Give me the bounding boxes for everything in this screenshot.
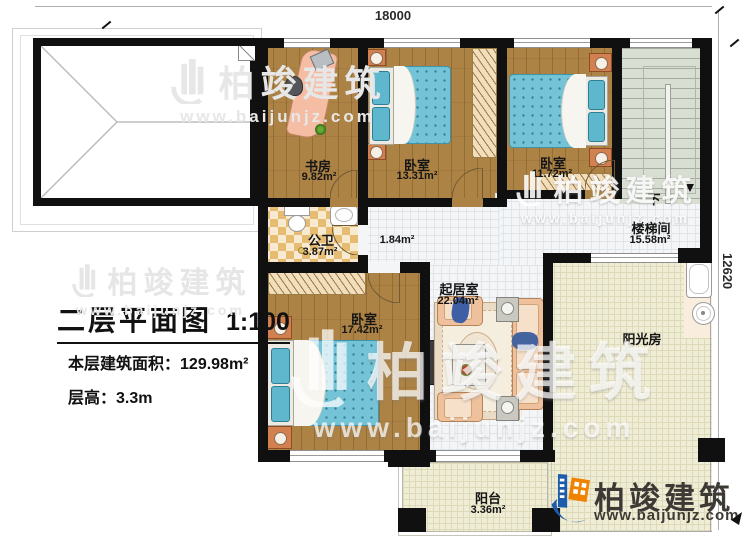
floor-area-label: 本层建筑面积：	[68, 356, 180, 373]
table-lamp	[501, 302, 514, 315]
pillow	[372, 107, 390, 141]
window	[630, 38, 692, 48]
toilet-bowl	[288, 215, 306, 232]
armchair-cushion	[444, 398, 472, 418]
wall	[358, 46, 368, 201]
floor-height-value: 3.3m	[116, 390, 152, 407]
door-arc	[368, 273, 400, 303]
dimension-line-top	[35, 6, 712, 7]
nightstand	[589, 53, 612, 72]
wall	[543, 253, 591, 263]
window	[384, 38, 460, 48]
door-leaf	[399, 273, 400, 303]
window	[514, 38, 590, 48]
pillar	[698, 438, 725, 462]
wall	[258, 262, 430, 273]
wall	[700, 38, 712, 263]
pillow	[271, 348, 290, 384]
wardrobe	[472, 48, 497, 158]
room-area-balcony: 3.36m²	[471, 504, 506, 516]
room-area-hallway: 1.84m²	[380, 234, 415, 246]
tick-mark	[730, 39, 740, 48]
door-opening	[358, 225, 368, 255]
title-block: 二层平面图1:100	[57, 299, 290, 344]
dimension-top: 18000	[358, 8, 428, 23]
door-leaf	[614, 160, 615, 190]
page-title: 二层平面图	[57, 305, 212, 336]
wardrobe	[268, 272, 366, 295]
sunroom-bottom-edge	[548, 531, 712, 532]
watermark-company: 柏竣建筑	[108, 258, 252, 302]
company-website: www.baijunjz.com	[594, 507, 739, 524]
drawing-scale: 1:100	[226, 308, 290, 336]
pillow	[271, 386, 290, 422]
door-opening	[368, 262, 400, 273]
room-area-living: 22.04m²	[438, 295, 479, 307]
floor-height-label: 层高：	[68, 390, 116, 407]
office-chair	[285, 76, 303, 96]
door-leaf	[356, 170, 357, 198]
tick-mark	[715, 6, 725, 15]
basin-drain	[701, 311, 705, 315]
cursor-icon	[731, 512, 744, 527]
roof-hatch-opening	[238, 46, 255, 61]
stair-down-arrow-icon	[686, 184, 694, 192]
room-area-bedroom2: 11.72m²	[532, 168, 572, 180]
door-opening	[585, 190, 615, 199]
door-opening	[452, 198, 483, 207]
wall	[497, 46, 507, 192]
pillow	[372, 71, 390, 105]
floor-plan-canvas: 18000 12620	[0, 0, 750, 541]
floor-area-line: 本层建筑面积：129.98m²	[68, 350, 249, 374]
pillow	[588, 112, 605, 142]
wall	[543, 255, 553, 455]
room-area-stairwell: 15.58m²	[630, 234, 671, 246]
bathtub-inner	[689, 264, 709, 294]
door-leaf	[332, 225, 358, 226]
table-lamp	[501, 401, 514, 414]
nightstand	[267, 426, 292, 449]
sliding-door	[436, 450, 520, 462]
washbasin-bowl	[335, 208, 353, 222]
stair-down-label: 下	[647, 189, 660, 208]
sofa-cushion	[516, 372, 539, 404]
door-arc	[585, 160, 615, 190]
room-area-bathroom: 3.87m²	[303, 246, 338, 258]
door-arc	[452, 168, 483, 199]
roof-hip-lines	[41, 46, 250, 198]
room-area-study: 9.82m²	[302, 171, 337, 183]
plant	[315, 124, 326, 135]
room-area-bedroom3: 17.42m²	[342, 324, 383, 336]
floor-area-value: 129.98m²	[180, 356, 249, 373]
dimension-right: 12620	[720, 253, 735, 289]
flower-decor	[460, 364, 472, 376]
wall	[258, 38, 268, 462]
bed-sheet	[561, 74, 586, 148]
door-opening	[330, 198, 358, 207]
handrail	[665, 84, 671, 204]
pillar	[678, 248, 712, 263]
nightstand	[366, 143, 386, 160]
wall	[388, 450, 430, 467]
floor-height-line: 层高：3.3m	[68, 384, 152, 408]
wall	[420, 265, 430, 457]
watermark-logo-icon	[70, 263, 100, 297]
sliding-door	[591, 253, 678, 263]
pillow	[588, 80, 605, 110]
room-area-bedroom1: 13.31m²	[397, 170, 438, 182]
room-label-sunroom: 阳光房	[622, 329, 661, 348]
door-leaf	[482, 168, 483, 199]
window	[284, 38, 330, 48]
window	[290, 450, 384, 462]
person-figure	[512, 332, 538, 350]
company-logo-icon	[546, 468, 592, 528]
nightstand	[366, 49, 386, 66]
pillar	[398, 508, 426, 532]
